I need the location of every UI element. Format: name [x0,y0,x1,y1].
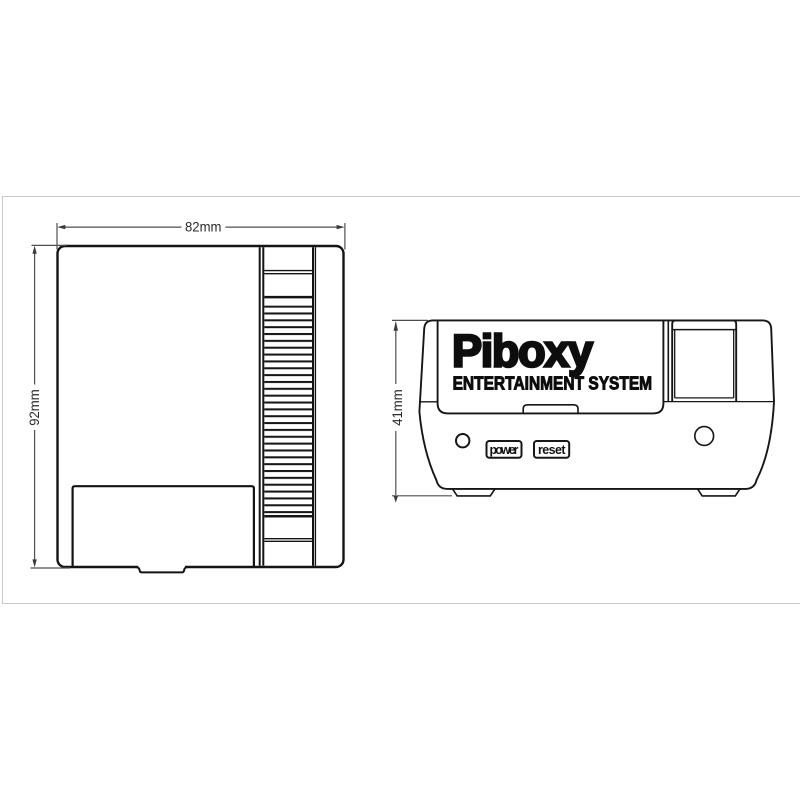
svg-text:92mm: 92mm [27,389,42,426]
svg-text:power: power [490,443,519,457]
svg-text:Piboxy: Piboxy [452,326,593,377]
svg-text:41mm: 41mm [390,389,405,426]
svg-text:ENTERTAINMENT SYSTEM: ENTERTAINMENT SYSTEM [453,373,652,394]
svg-text:reset: reset [538,443,566,457]
svg-text:82mm: 82mm [185,220,222,235]
